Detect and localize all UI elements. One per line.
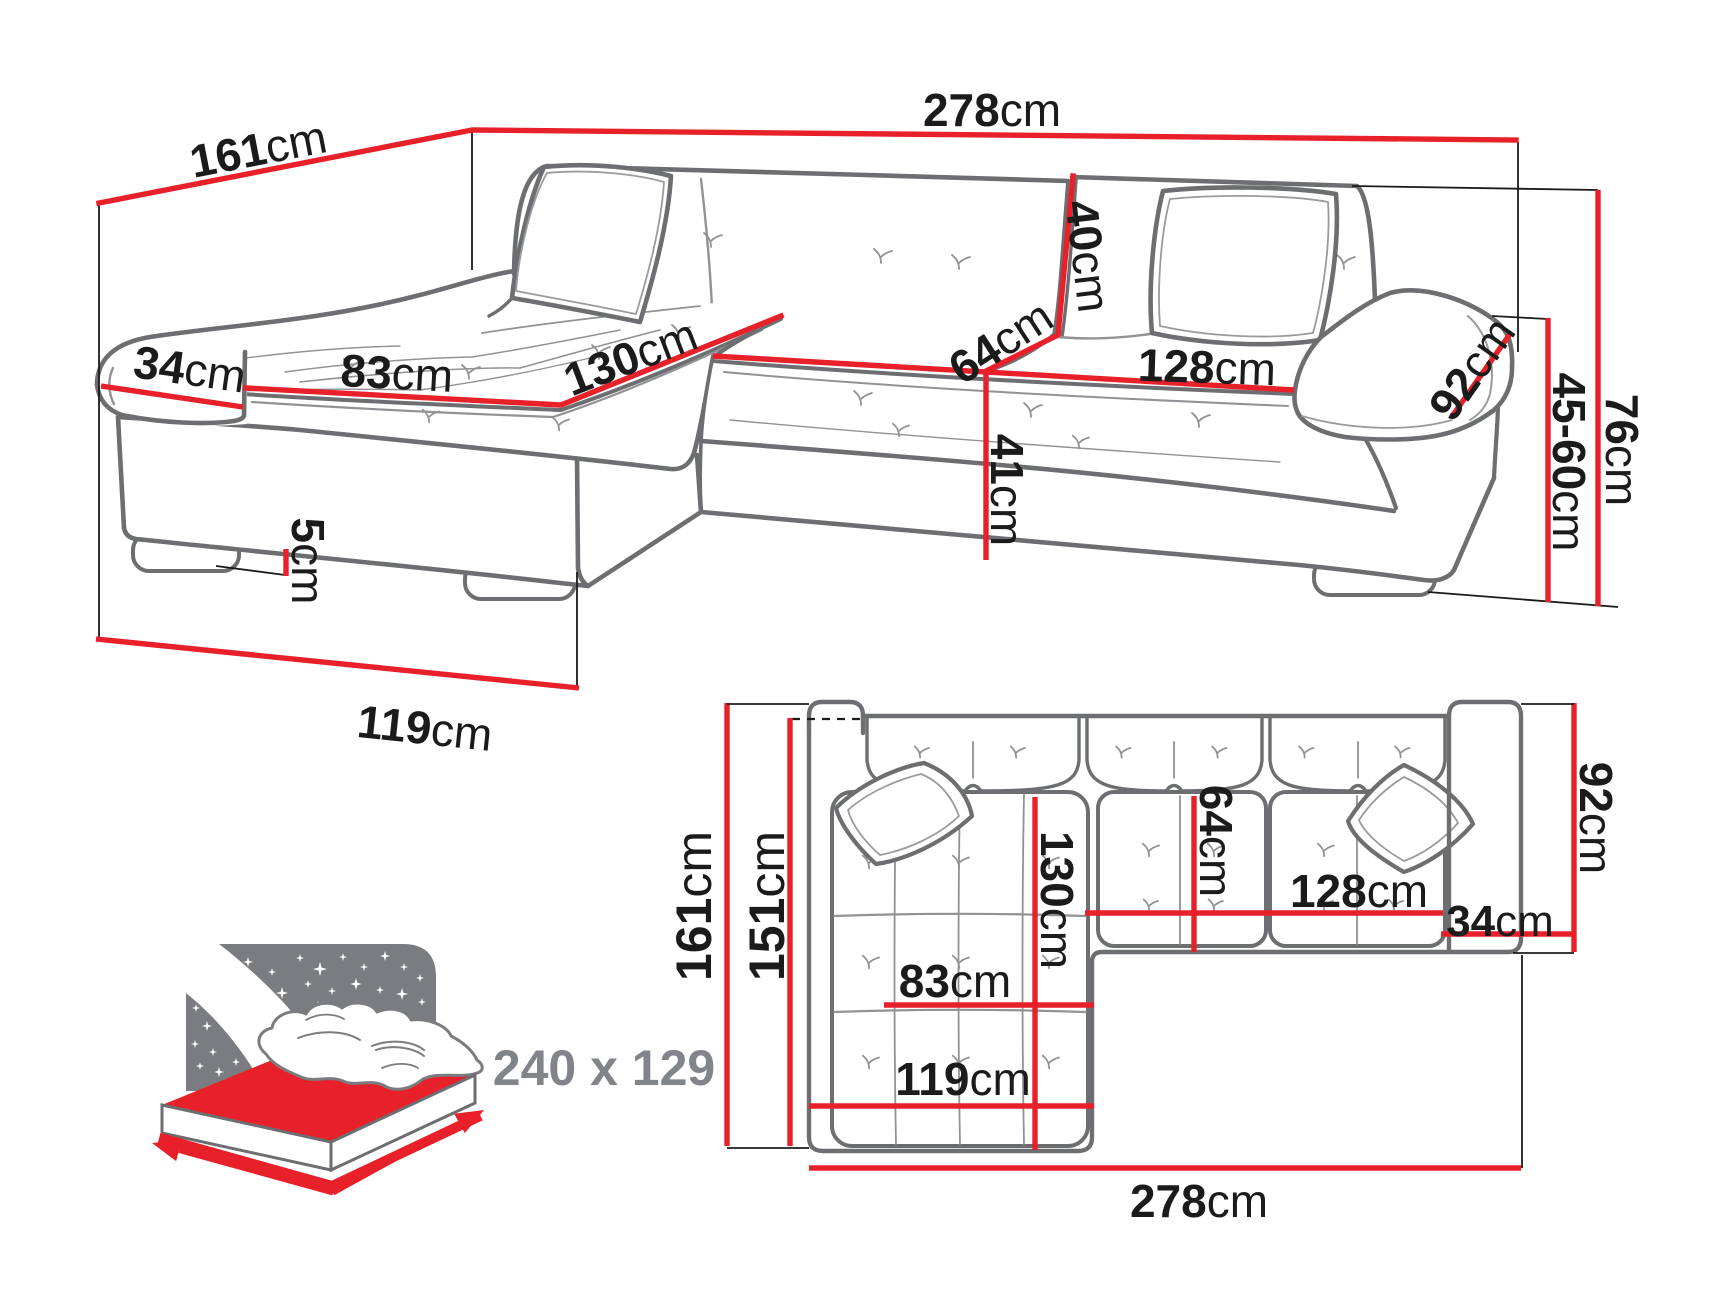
svg-text:76cm: 76cm: [1596, 394, 1648, 507]
svg-text:128cm: 128cm: [1290, 865, 1428, 917]
svg-text:34cm: 34cm: [1446, 897, 1554, 946]
svg-text:278cm: 278cm: [923, 84, 1061, 136]
svg-text:119cm: 119cm: [895, 1053, 1031, 1105]
svg-text:83cm: 83cm: [899, 955, 1012, 1007]
svg-text:41cm: 41cm: [981, 434, 1033, 547]
svg-text:128cm: 128cm: [1137, 339, 1277, 396]
svg-text:278cm: 278cm: [1130, 1175, 1268, 1227]
svg-text:130cm: 130cm: [1031, 831, 1083, 969]
svg-text:240 x 129: 240 x 129: [493, 1040, 715, 1096]
svg-text:83cm: 83cm: [339, 344, 454, 402]
svg-text:5cm: 5cm: [282, 518, 334, 605]
svg-text:45-60cm: 45-60cm: [1543, 373, 1595, 552]
svg-text:92cm: 92cm: [1570, 762, 1622, 875]
svg-text:64cm: 64cm: [1190, 785, 1242, 898]
svg-text:161cm: 161cm: [666, 831, 722, 981]
svg-text:151cm: 151cm: [739, 831, 795, 981]
